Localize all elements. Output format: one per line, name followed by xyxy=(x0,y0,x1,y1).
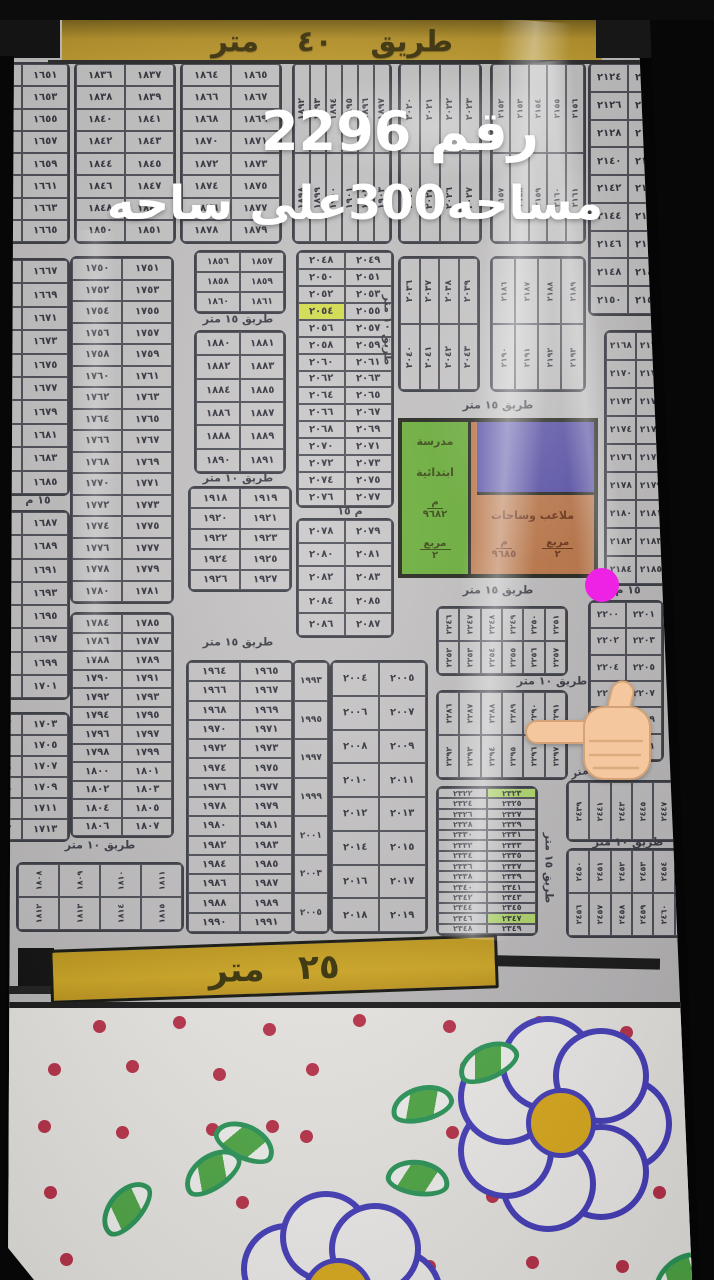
plot-cell: ١٨٥٨ xyxy=(196,272,240,292)
plot-block: ٢٣٢٢٢٣٢٣٢٣٢٤٢٣٢٥٢٣٢٦٢٣٢٧٢٣٢٨٢٣٢٩٢٣٣٠٢٣٣١… xyxy=(436,786,538,936)
plot-block: ١٨٨٠١٨٨١١٨٨٢١٨٨٣١٨٨٤١٨٨٥١٨٨٦١٨٨٧١٨٨٨١٨٨٩… xyxy=(194,330,286,474)
plot-cell: ٢٣٤٣ xyxy=(487,892,536,902)
plot-cell: ٢٠١٤ xyxy=(332,831,379,865)
plot-cell: ١٧٧٥ xyxy=(122,516,172,538)
plot-cell: ١٩٢١ xyxy=(240,508,290,528)
red-dot-decor xyxy=(261,1021,278,1038)
flower-center xyxy=(526,1088,596,1158)
plot-cell: ٢٠٠١ xyxy=(294,816,328,855)
plot-cell: ٢٢٥٤ xyxy=(481,641,502,674)
plot-cell: ٢١٩٣ xyxy=(561,324,584,390)
plot-cell: ١٨٨١ xyxy=(240,332,284,355)
plot-cell: ٢٣٣١ xyxy=(487,830,536,840)
plot-cell: ١٨٨٦ xyxy=(196,402,240,425)
plot-cell: ١٩٨٠ xyxy=(188,816,240,835)
plot-cell: ١٧٧٢ xyxy=(72,495,122,517)
plot-cell: ١٩٩٩ xyxy=(294,778,328,817)
plot-cell: ٢٠٤٢ xyxy=(439,324,459,390)
plot-cell: ٢٤٥٤ xyxy=(653,850,674,893)
plot-cell: ٢٠٠٨ xyxy=(332,730,379,764)
plot-cell: ٢١٧٧ xyxy=(636,444,666,472)
plot-cell: ١٧٧٦ xyxy=(72,538,122,560)
red-dot-decor xyxy=(524,1254,541,1271)
road-banner-bottom-label: ٢٥ متر xyxy=(208,947,341,992)
plot-cell: ٢٢٥١ xyxy=(545,608,566,641)
plot-cell: ١٩٧٩ xyxy=(240,797,292,816)
plot-cell: ١٨٥٦ xyxy=(196,252,240,272)
plot-cell: ١٦٥٣ xyxy=(22,86,68,108)
plot-cell: ٢١٧٢ xyxy=(606,388,636,416)
plot-cell: ١٦٨٣ xyxy=(22,447,68,470)
plot-cell: ٢١٧١ xyxy=(636,360,666,388)
playground-label: ملاعب وساحات xyxy=(491,509,574,522)
plot-block: ١٧٥٠١٧٥١١٧٥٢١٧٥٣١٧٥٤١٧٥٥١٧٥٦١٧٥٧١٧٥٨١٧٥٩… xyxy=(70,256,174,604)
overlay-area-text: مساحه300على ساحه xyxy=(70,176,640,231)
plot-cell: ١٨٠٧ xyxy=(122,818,172,837)
blue-plot xyxy=(477,422,594,495)
plot-cell: ١٧٦١ xyxy=(122,366,172,388)
plot-cell: ٢٢٨٧ xyxy=(459,692,480,735)
photo-frame-corner xyxy=(0,20,60,58)
plot-block: ٢٤٥٠٢٤٥١٢٤٥٢٢٤٥٣٢٤٥٤٢٤٥٥٢٤٥٦٢٤٥٧٢٤٥٨٢٤٥٩… xyxy=(566,848,698,938)
plot-cell: ١٧٠٧ xyxy=(22,756,68,777)
plot-cell: ١٧٩١ xyxy=(122,670,172,689)
plot-cell: ٢٣٢٧ xyxy=(487,809,536,819)
plot-cell: ١٩٢٢ xyxy=(190,529,240,549)
plot-cell: ٢١٨٢ xyxy=(606,528,636,556)
road-label: طريق ١٠ متر xyxy=(203,472,274,485)
plot-cell: ١٦٩٩ xyxy=(22,652,68,675)
plot-cell: ١٩٦٧ xyxy=(240,681,292,700)
red-dot-decor xyxy=(36,1118,53,1135)
plot-cell: ٢٢٩٣ xyxy=(459,735,480,778)
plot-cell: ٢٢٩٢ xyxy=(438,735,459,778)
road-label: طريق ١٥ متر xyxy=(463,584,534,597)
plot-cell: ٢٢٥٧ xyxy=(545,641,566,674)
plot-cell: ٢٠٨٥ xyxy=(345,590,392,613)
plot-cell: ٢٤٥١ xyxy=(589,850,610,893)
plot-cell: ٢١٩٠ xyxy=(492,324,515,390)
playground-block-fraction: مربع٢ xyxy=(542,537,573,560)
plot-cell: ٢٠١٥ xyxy=(379,831,426,865)
plot-cell: ١٧٩٨ xyxy=(72,744,122,763)
plot-cell: ١٦٧٥ xyxy=(22,354,68,377)
plot-cell: ١٧٦٢ xyxy=(72,387,122,409)
plot-cell: ٢٠٣٩ xyxy=(459,258,479,324)
plot-cell: ١٧٥١ xyxy=(122,258,172,280)
plot-cell: ٢٠٠٧ xyxy=(379,696,426,730)
plot-cell: ١٧٠٣ xyxy=(22,714,68,735)
plot-cell: ٢٣٣٧ xyxy=(487,861,536,871)
plot-cell: ٢٣٤٤ xyxy=(438,903,487,913)
plot-cell: ١٩٢٠ xyxy=(190,508,240,528)
plot-cell: ٢٣٢٥ xyxy=(487,798,536,808)
plot-cell: ١٦٧١ xyxy=(22,307,68,330)
plot-cell: ١٩٢٥ xyxy=(240,549,290,569)
plot-cell: ١٨١٣ xyxy=(59,897,100,930)
plot-cell: ١٨٠١ xyxy=(122,762,172,781)
plot-cell: ١٨٨٨ xyxy=(196,425,240,448)
plot-cell: ٢٠١١ xyxy=(379,763,426,797)
plot-cell: ٢٣٢٨ xyxy=(438,819,487,829)
school-label-line1: مدرسة xyxy=(417,435,454,448)
plot-cell: ١٧١١ xyxy=(22,798,68,819)
plot-cell: ٢٢٩٥ xyxy=(502,735,523,778)
plot-cell: ١٧٠٥ xyxy=(22,735,68,756)
plot-cell: ١٦٩٥ xyxy=(22,605,68,628)
overlay-plot-number: رقم 2296 xyxy=(160,100,640,163)
plot-cell: ١٨٠٠ xyxy=(72,762,122,781)
plot-cell: ٢٢٥٠ xyxy=(523,608,544,641)
plot-cell: ٢٠٨٧ xyxy=(345,613,392,636)
plot-cell: ١٨٩١ xyxy=(240,449,284,472)
plot-cell: ٢١٨٦ xyxy=(492,258,515,324)
plot-cell: ٢٠٦٧ xyxy=(345,404,392,421)
plot-cell: ٢١٧٥ xyxy=(636,416,666,444)
plot-cell: ٢٠٧٦ xyxy=(298,489,345,506)
plot-cell: ٢١٨٠ xyxy=(606,500,636,528)
red-dot-decor xyxy=(264,1118,281,1135)
plot-cell: ١٦٩١ xyxy=(22,559,68,582)
plot-cell: ٢٤٥٩ xyxy=(632,893,653,936)
plot-cell: ٢١٧٦ xyxy=(606,444,636,472)
plot-cell: ١٧٦٦ xyxy=(72,430,122,452)
plot-cell: ١٦٧٧ xyxy=(22,377,68,400)
plot-cell: ٢٣٢٤ xyxy=(438,798,487,808)
plot-cell: ٢٢٤٧ xyxy=(459,608,480,641)
plot-cell: ١٧٩٣ xyxy=(122,688,172,707)
plot-cell: ٢٠٥٨ xyxy=(298,337,345,354)
plot-cell: ٢٤٥٨ xyxy=(611,893,632,936)
plot-cell: ٢٠١٢ xyxy=(332,797,379,831)
plot-cell: ١٧٦٥ xyxy=(122,409,172,431)
plot-cell: ٢٠٠٦ xyxy=(332,696,379,730)
plot-cell: ١٨٦١ xyxy=(240,292,284,312)
plot-cell: ١٦٦٥ xyxy=(22,220,68,242)
plot-cell: ١٧٨٠ xyxy=(72,581,122,603)
plot-cell: ١٨٠٨ xyxy=(18,864,59,897)
red-dot-decor xyxy=(234,1194,251,1211)
plot-cell: ٢٢٨٦ xyxy=(438,692,459,735)
plot-cell: ١٨٤٤ xyxy=(76,153,125,175)
plot-cell: ٢٠٣٦ xyxy=(400,258,420,324)
plot-cell: ٢٣٤٢ xyxy=(438,892,487,902)
plot-cell: ١٧٩٥ xyxy=(122,707,172,726)
plot-cell: ١٦٦٣ xyxy=(22,198,68,220)
plot-cell: ١٦٨١ xyxy=(22,424,68,447)
plot-cell: ١٧٥٦ xyxy=(72,323,122,345)
plot-cell: ١٩٨٨ xyxy=(188,893,240,912)
plot-cell: ١٩٧٠ xyxy=(188,720,240,739)
plot-cell: ١٧٦٣ xyxy=(122,387,172,409)
plot-cell: ٢٠٧٣ xyxy=(345,455,392,472)
plot-cell: ١٧٧٨ xyxy=(72,559,122,581)
plot-block: ٢٠٧٨٢٠٧٩٢٠٨٠٢٠٨١٢٠٨٢٢٠٨٣٢٠٨٤٢٠٨٥٢٠٨٦٢٠٨٧ xyxy=(296,518,394,638)
plot-cell: ٢٢٥٣ xyxy=(459,641,480,674)
plot-cell: ٢١٩١ xyxy=(515,324,538,390)
plot-cell: ١٦٥٧ xyxy=(22,131,68,153)
plot-block: ٢٠٣٦٢٠٣٧٢٠٣٨٢٠٣٩٢٠٤٠٢٠٤١٢٠٤٢٢٠٤٣ xyxy=(398,256,480,392)
plot-cell: ٢٣٤٧ xyxy=(487,913,536,923)
plot-cell: ٢٠١٣ xyxy=(379,797,426,831)
plot-cell: ١٧٧١ xyxy=(122,473,172,495)
plot-cell: ١٩٩٥ xyxy=(294,701,328,740)
plot-cell: ١٦٩٣ xyxy=(22,582,68,605)
plot-cell: ١٩٦٤ xyxy=(188,662,240,681)
leaf-illustration xyxy=(386,1078,457,1129)
plot-cell: ٢٣٤٥ xyxy=(487,903,536,913)
plot-cell: ٢٠١٦ xyxy=(332,865,379,899)
plot-cell: ١٦٥١ xyxy=(22,64,68,86)
plot-block: ٢٠٤٨٢٠٤٩٢٠٥٠٢٠٥١٢٠٥٢٢٠٥٣٢٠٥٤٢٠٥٥٢٠٥٦٢٠٥٧… xyxy=(296,250,394,508)
school-label-line2: ابتدائية xyxy=(416,466,454,479)
school-block-fraction: مربع٢ xyxy=(420,538,451,561)
plot-cell: ١٦٦١ xyxy=(22,175,68,197)
plot-cell: ١٧٨٦ xyxy=(72,633,122,652)
plot-cell: ٢٠٦٢ xyxy=(298,371,345,388)
plot-cell: ٢٠١٨ xyxy=(332,898,379,932)
red-dot-decor xyxy=(614,1258,631,1275)
plot-cell: ١٩٩١ xyxy=(240,913,292,932)
plot-cell: ٢٣٤١ xyxy=(487,882,536,892)
plot-cell: ١٨٤٠ xyxy=(76,109,125,131)
plot-cell: ٢٠١٠ xyxy=(332,763,379,797)
road-label: طريق ١٥ متر xyxy=(203,636,274,649)
plot-block: ١٩٦٤١٩٦٥١٩٦٦١٩٦٧١٩٦٨١٩٦٩١٩٧٠١٩٧١١٩٧٢١٩٧٣… xyxy=(186,660,294,934)
plot-cell: ١٦٧٩ xyxy=(22,400,68,423)
plot-cell: ١٩٨٥ xyxy=(240,855,292,874)
red-dot-decor xyxy=(444,1124,461,1141)
school-plot: مدرسة ابتدائية م٩٦٨٢ مربع٢ ملاعب وساحات … xyxy=(398,418,598,578)
plot-cell: ١٦٥٥ xyxy=(22,109,68,131)
plot-cell: ١٨١٤ xyxy=(100,897,141,930)
plot-cell: ٢٢٥٢ xyxy=(438,641,459,674)
plot-cell: ١٧٦٧ xyxy=(122,430,172,452)
plot-cell: ١٧٥٤ xyxy=(72,301,122,323)
plot-cell: ٢٠٦٤ xyxy=(298,387,345,404)
plot-cell: ١٩٦٨ xyxy=(188,701,240,720)
plot-cell: ٢١٨٩ xyxy=(561,258,584,324)
plot-cell: ٢٠٨٠ xyxy=(298,543,345,566)
red-dot-decor xyxy=(441,1018,458,1035)
road-label: طريق ١٥ متر xyxy=(543,833,556,904)
plot-cell: ١٨٣٨ xyxy=(76,86,125,108)
red-dot-decor xyxy=(91,1018,108,1035)
plot-cell: ٢٤٥٣ xyxy=(632,850,653,893)
red-dot-decor xyxy=(298,1128,315,1145)
plot-cell: ٢٤٥٠ xyxy=(568,850,589,893)
plot-cell: ١٩١٨ xyxy=(190,488,240,508)
plot-block: ١٨٠٨١٨٠٩١٨١٠١٨١١١٨١٢١٨١٣١٨١٤١٨١٥ xyxy=(16,862,184,932)
plot-cell: ١٧٩٤ xyxy=(72,707,122,726)
plot-cell: ٢٠٣٧ xyxy=(420,258,440,324)
plot-cell: ١٨٨٤ xyxy=(196,379,240,402)
road-label: طريق ١٥ متر xyxy=(463,399,534,412)
plot-cell: ١٧٥٠ xyxy=(72,258,122,280)
plot-cell: ٢٤٥٢ xyxy=(611,850,632,893)
plot-cell: ١٨٨٠ xyxy=(196,332,240,355)
plot-cell: ٢٠٧٠ xyxy=(298,438,345,455)
plot-cell: ١٧٠١ xyxy=(22,675,68,698)
plot-cell: ٢٠٨٢ xyxy=(298,566,345,589)
plot-cell: ٢١٤٦ xyxy=(590,231,628,259)
plot-cell: ٢١٨١ xyxy=(636,500,666,528)
plot-cell: ١٩٧١ xyxy=(240,720,292,739)
playground-plot: ملاعب وساحات م٩٦٨٥ مربع٢ xyxy=(471,495,594,574)
plot-cell: ٢٤٥٦ xyxy=(568,893,589,936)
decorative-footer: خارطة منطقة الحرس الخاصقطعة (٥) مقاطعة xyxy=(8,1002,698,1280)
plot-cell: ١٧٩٠ xyxy=(72,670,122,689)
magenta-dot-marker xyxy=(585,568,619,602)
plot-cell: ٢٠٥٠ xyxy=(298,269,345,286)
plot-cell: ٢٠٨٦ xyxy=(298,613,345,636)
plot-cell: ١٩٨٦ xyxy=(188,874,240,893)
plot-cell: ١٧٦٠ xyxy=(72,366,122,388)
plot-cell: ١٧٥٥ xyxy=(122,301,172,323)
plot-cell: ١٩٢٧ xyxy=(240,570,290,590)
plot-cell: ١٦٨٧ xyxy=(22,512,68,535)
plot-cell: ٢٠٧٨ xyxy=(298,520,345,543)
plot-cell: ١٨٩٠ xyxy=(196,449,240,472)
plot-cell: ١٨٨٧ xyxy=(240,402,284,425)
road-banner-top-label: طريق ٤٠ متر xyxy=(211,24,453,58)
plot-cell: ٢٠٤٩ xyxy=(345,252,392,269)
plot-cell: ٢٠٦٠ xyxy=(298,354,345,371)
plot-cell: ٢٠٤٨ xyxy=(298,252,345,269)
plot-cell: ٢٠٦٩ xyxy=(345,421,392,438)
plot-cell: ٢٠٧١ xyxy=(345,438,392,455)
plot-cell: ٢١٤٨ xyxy=(590,258,628,286)
plot-cell: ٢٢٠٢ xyxy=(590,628,626,654)
plot-cell: ٢٢٠٠ xyxy=(590,602,626,628)
plot-cell: ١٨١١ xyxy=(141,864,182,897)
plot-cell: ١٨٠٥ xyxy=(122,799,172,818)
plot-cell: ١٩٨١ xyxy=(240,816,292,835)
plot-cell: ٢١٨٧ xyxy=(515,258,538,324)
plot-cell: ١٦٦٧ xyxy=(22,260,68,283)
plot-cell: ٢٣٢٦ xyxy=(438,809,487,819)
plot-cell: ١٨١٥ xyxy=(141,897,182,930)
plot-cell: ٢٣٤٩ xyxy=(487,924,536,934)
leaf-illustration xyxy=(92,1172,161,1244)
plot-cell: ١٨٠٩ xyxy=(59,864,100,897)
plot-cell: ١٩٧٦ xyxy=(188,778,240,797)
plot-cell: ١٩٩٠ xyxy=(188,913,240,932)
plot-cell: ٢٢٩٤ xyxy=(481,735,502,778)
road-banner-top: طريق ٤٠ متر xyxy=(62,20,602,62)
plot-block: ١٧٨٤١٧٨٥١٧٨٦١٧٨٧١٧٨٨١٧٨٩١٧٩٠١٧٩١١٧٩٢١٧٩٣… xyxy=(70,612,174,838)
plot-cell: ٢٣٣٥ xyxy=(487,851,536,861)
plot-cell: ٢١٦٩ xyxy=(636,332,666,360)
plot-cell: ٢٣٣٤ xyxy=(438,851,487,861)
red-dot-decor xyxy=(42,1184,59,1201)
plot-cell: ٢٠٧٢ xyxy=(298,455,345,472)
plot-block: ١٨٥٦١٨٥٧١٨٥٨١٨٥٩١٨٦٠١٨٦١ xyxy=(194,250,286,314)
red-dot-decor xyxy=(304,1061,321,1078)
plot-cell: ٢٠٥١ xyxy=(345,269,392,286)
red-dot-decor xyxy=(58,1251,75,1268)
plot-cell: ١٨٣٦ xyxy=(76,64,125,86)
plot-cell: ١٨٨٢ xyxy=(196,355,240,378)
playground-area-fraction: م٩٦٨٥ xyxy=(492,537,516,560)
plot-cell: ١٩٨٧ xyxy=(240,874,292,893)
plot-cell: ٢٠٥٤ xyxy=(298,303,345,320)
plot-cell: ٢١٨٥ xyxy=(636,556,666,584)
plot-cell: ٢٠٨١ xyxy=(345,543,392,566)
plot-cell: ١٩٦٩ xyxy=(240,701,292,720)
plot-cell: ١٧٩٩ xyxy=(122,744,172,763)
plot-cell: ١٧٧٧ xyxy=(122,538,172,560)
plot-cell: ٢٢٠٣ xyxy=(626,628,662,654)
red-dot-decor xyxy=(46,1061,63,1078)
plot-cell: ١٩٨٣ xyxy=(240,836,292,855)
leaf-illustration xyxy=(384,1156,452,1201)
plot-block: ٢٢٤٦٢٢٤٧٢٢٤٨٢٢٤٩٢٢٥٠٢٢٥١٢٢٥٢٢٢٥٣٢٢٥٤٢٢٥٥… xyxy=(436,606,568,676)
plot-cell: ١٧٩٧ xyxy=(122,725,172,744)
plot-cell: ٢٠٥٦ xyxy=(298,320,345,337)
road-label: طريق ١٠ متر xyxy=(593,836,664,849)
plot-cell: ٢٣٤٦ xyxy=(438,913,487,923)
plot-cell: ١٨١٢ xyxy=(18,897,59,930)
plot-cell: ١٩٧٤ xyxy=(188,758,240,777)
plot-cell: ١٨٣٧ xyxy=(125,64,174,86)
plot-cell: ٢٠٦٣ xyxy=(345,371,392,388)
plot-cell: ١٦٨٩ xyxy=(22,535,68,558)
plot-cell: ١٧٨٩ xyxy=(122,651,172,670)
plot-cell: ١٧٨٧ xyxy=(122,633,172,652)
plot-cell: ١٧١٣ xyxy=(22,819,68,840)
plot-cell: ٢١٥١ xyxy=(628,286,666,314)
plot-block: ١٧٠٢١٧٠٣١٧٠٤١٧٠٥١٧٠٦١٧٠٧١٧٠٨١٧٠٩١٧١٠١٧١١… xyxy=(0,712,70,842)
plot-cell: ١٨٦٥ xyxy=(231,64,280,86)
plot-cell: ٢٢٨٨ xyxy=(481,692,502,735)
school-area-fraction: م٩٦٨٢ xyxy=(423,497,447,520)
plot-cell: ٢٣٤٠ xyxy=(438,882,487,892)
plot-cell: ٢٠٨٣ xyxy=(345,566,392,589)
plot-cell: ٢٢٤٦ xyxy=(438,608,459,641)
plot-cell: ٢٠٤١ xyxy=(420,324,440,390)
plot-cell: ١٩٢٤ xyxy=(190,549,240,569)
plot-cell: ٢١٥٠ xyxy=(590,286,628,314)
photo-frame-top xyxy=(0,0,714,20)
road-label: طريق ١٥ متر xyxy=(203,313,274,326)
plot-cell: ١٧٥٢ xyxy=(72,280,122,302)
plot-cell: ١٧٥٧ xyxy=(122,323,172,345)
plot-cell: ٢١٨٣ xyxy=(636,528,666,556)
red-dot-decor xyxy=(351,1012,368,1029)
plot-cell: ٢٢٥٥ xyxy=(502,641,523,674)
plot-block: ١٩٩٣١٩٩٥١٩٩٧١٩٩٩٢٠٠١٢٠٠٣٢٠٠٥ xyxy=(292,660,330,934)
plot-cell: ١٩٦٥ xyxy=(240,662,292,681)
plot-cell: ١٩٧٣ xyxy=(240,739,292,758)
plot-cell: ١٦٧٣ xyxy=(22,330,68,353)
plot-cell: ٢١٩٢ xyxy=(538,324,561,390)
plot-cell: ٢٠٠٥ xyxy=(379,662,426,696)
plot-cell: ٢٣٣٩ xyxy=(487,871,536,881)
plot-cell: ١٩٢٣ xyxy=(240,529,290,549)
plot-cell: ١٨٠٤ xyxy=(72,799,122,818)
plot-cell: ٢٠٤٠ xyxy=(400,324,420,390)
plot-cell: ١٧٥٩ xyxy=(122,344,172,366)
pointing-finger-icon xyxy=(524,678,674,792)
plot-cell: ٢٠٦٨ xyxy=(298,421,345,438)
plot-cell: ١٨٨٥ xyxy=(240,379,284,402)
plot-cell: ١٧٦٨ xyxy=(72,452,122,474)
plot-cell: ١٩٨٩ xyxy=(240,893,292,912)
plot-cell: ٢٠٠٤ xyxy=(332,662,379,696)
plot-cell: ٢٣٤٨ xyxy=(438,924,487,934)
plot-cell: ١٧٩٢ xyxy=(72,688,122,707)
